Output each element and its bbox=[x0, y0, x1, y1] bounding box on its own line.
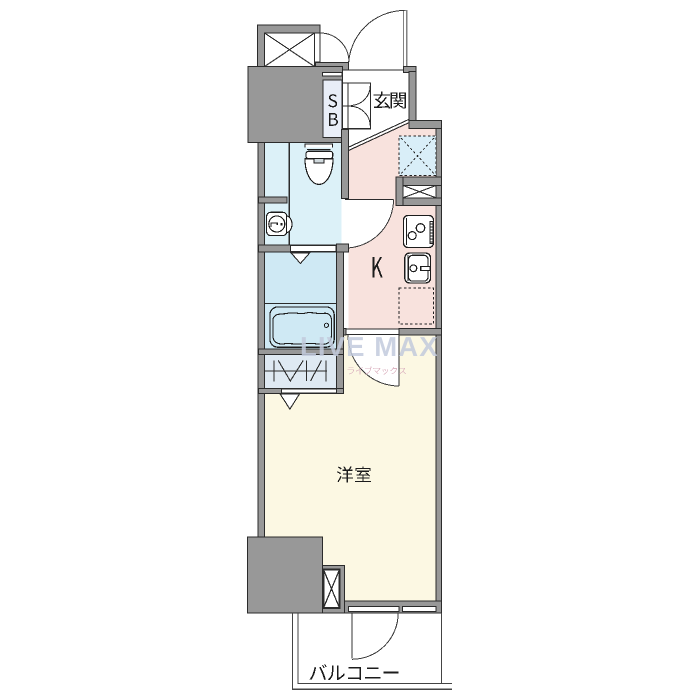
svg-text:LIVE MAX: LIVE MAX bbox=[300, 331, 439, 362]
